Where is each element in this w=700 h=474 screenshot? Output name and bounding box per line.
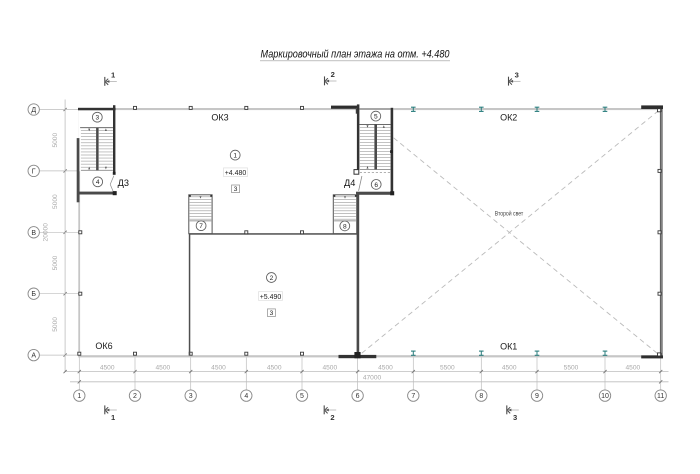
svg-text:Б: Б — [31, 291, 36, 298]
svg-text:5: 5 — [374, 113, 378, 120]
svg-text:Второй свет: Второй свет — [495, 209, 524, 217]
svg-text:+4.480: +4.480 — [225, 170, 247, 177]
svg-text:Д3: Д3 — [118, 178, 129, 188]
svg-text:3: 3 — [234, 186, 238, 193]
svg-text:ОК2: ОК2 — [500, 112, 517, 122]
svg-text:Маркировочный план этажа на от: Маркировочный план этажа на отм. +4.480 — [261, 49, 451, 61]
svg-text:10: 10 — [601, 393, 609, 400]
svg-text:5000: 5000 — [52, 255, 59, 270]
svg-text:ОК3: ОК3 — [211, 112, 228, 122]
svg-text:4500: 4500 — [156, 364, 171, 371]
svg-text:2: 2 — [331, 70, 335, 79]
svg-text:А: А — [31, 353, 36, 360]
svg-text:2: 2 — [330, 413, 334, 422]
svg-text:2: 2 — [133, 393, 137, 400]
svg-text:Г: Г — [32, 168, 36, 175]
svg-text:6: 6 — [356, 393, 360, 400]
svg-text:4500: 4500 — [211, 364, 226, 371]
svg-text:4: 4 — [96, 179, 100, 186]
svg-text:5000: 5000 — [52, 317, 59, 332]
svg-text:4500: 4500 — [100, 364, 115, 371]
svg-text:ОК6: ОК6 — [95, 341, 112, 351]
svg-text:4500: 4500 — [322, 364, 337, 371]
svg-text:4500: 4500 — [502, 364, 517, 371]
svg-text:ОК1: ОК1 — [500, 342, 517, 352]
svg-text:5000: 5000 — [52, 133, 59, 148]
svg-text:4500: 4500 — [378, 364, 393, 371]
svg-text:2: 2 — [270, 275, 274, 282]
svg-text:5: 5 — [300, 393, 304, 400]
svg-text:20000: 20000 — [43, 223, 50, 242]
svg-text:4500: 4500 — [626, 364, 641, 371]
svg-text:3: 3 — [513, 413, 517, 422]
svg-text:47000: 47000 — [363, 375, 382, 382]
svg-text:3: 3 — [189, 393, 193, 400]
svg-text:4500: 4500 — [267, 364, 282, 371]
svg-text:Д: Д — [31, 107, 36, 114]
svg-text:3: 3 — [515, 70, 519, 79]
svg-text:6: 6 — [374, 182, 378, 189]
svg-text:5500: 5500 — [564, 364, 579, 371]
svg-text:5000: 5000 — [52, 194, 59, 209]
svg-text:Д4: Д4 — [344, 178, 355, 188]
svg-text:+5.490: +5.490 — [260, 294, 282, 301]
svg-text:1: 1 — [77, 393, 81, 400]
svg-text:8: 8 — [479, 393, 483, 400]
svg-text:9: 9 — [535, 393, 539, 400]
svg-text:1: 1 — [233, 152, 237, 159]
svg-text:4: 4 — [244, 393, 248, 400]
svg-text:3: 3 — [270, 310, 274, 317]
svg-text:5500: 5500 — [440, 364, 455, 371]
svg-text:В: В — [31, 230, 36, 237]
svg-text:3: 3 — [95, 115, 99, 122]
svg-text:11: 11 — [657, 393, 664, 400]
svg-text:7: 7 — [199, 223, 203, 230]
svg-text:7: 7 — [411, 393, 415, 400]
svg-text:8: 8 — [343, 223, 347, 230]
